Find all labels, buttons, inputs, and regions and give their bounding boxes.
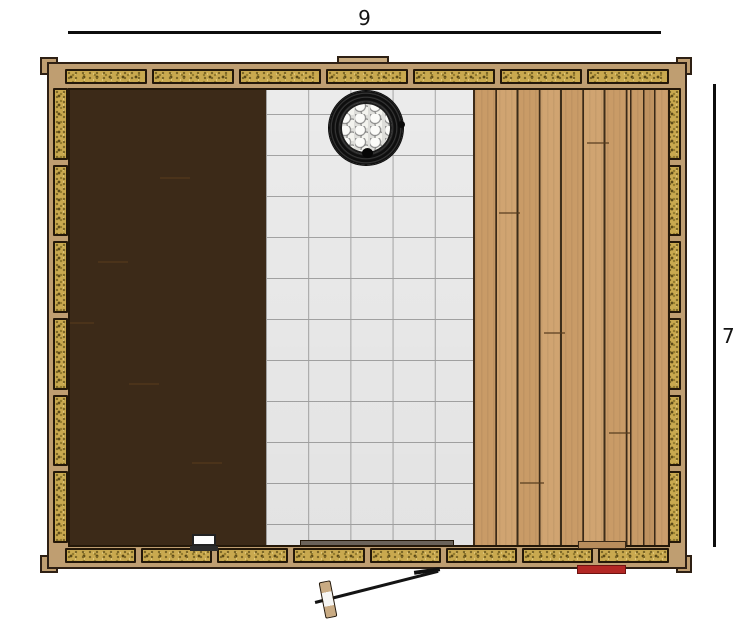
insulation-block: [65, 69, 147, 84]
insulation-block: [152, 69, 234, 84]
plank-seam: [544, 332, 565, 334]
red-marker: [577, 565, 626, 574]
plank-seam: [160, 177, 190, 179]
door-threshold: [300, 540, 454, 546]
wood-ledge: [578, 541, 626, 549]
door-handle-icon: [319, 580, 338, 619]
insulation-block: [446, 548, 517, 563]
ins-top: [65, 69, 669, 84]
stove-knob: [362, 148, 373, 158]
insulation-block: [293, 548, 364, 563]
insulation-block: [217, 548, 288, 563]
left-wood-deck: [70, 90, 264, 545]
insulation-block: [53, 395, 68, 467]
insulation-block: [500, 69, 582, 84]
insulation-block: [587, 69, 669, 84]
insulation-block: [522, 548, 593, 563]
plank-seam: [520, 482, 544, 484]
plank-seam: [129, 383, 159, 385]
plank-seam: [98, 261, 128, 263]
white-box: [192, 534, 216, 546]
right-wood-deck: [475, 90, 668, 545]
stove-fitting: [398, 121, 405, 128]
plank-seam: [192, 462, 222, 464]
white-box-base: [190, 546, 218, 551]
plank-seam: [609, 432, 630, 434]
floor-plan: 9 7: [0, 0, 746, 638]
insulation-block: [53, 88, 68, 160]
stove-stones: [340, 102, 392, 154]
plank-seam: [499, 212, 520, 214]
insulation-block: [326, 69, 408, 84]
stove-icon: [329, 91, 403, 165]
plank-seam: [70, 322, 94, 324]
dimension-label-height: 7: [722, 324, 735, 348]
dimension-line-width: [68, 31, 661, 34]
insulation-block: [413, 69, 495, 84]
dimension-line-height: [713, 84, 716, 547]
sauna-walls: [47, 62, 687, 569]
ins-left: [53, 88, 68, 543]
insulation-block: [53, 165, 68, 237]
ins-bottom: [65, 548, 669, 563]
insulation-block: [239, 69, 321, 84]
plank-seam: [587, 142, 609, 144]
insulation-block: [53, 471, 68, 543]
insulation-block: [53, 241, 68, 313]
insulation-block: [65, 548, 136, 563]
insulation-block: [53, 318, 68, 390]
insulation-block: [598, 548, 669, 563]
insulation-block: [370, 548, 441, 563]
dimension-label-width: 9: [68, 5, 661, 31]
sauna-interior: [68, 88, 670, 547]
